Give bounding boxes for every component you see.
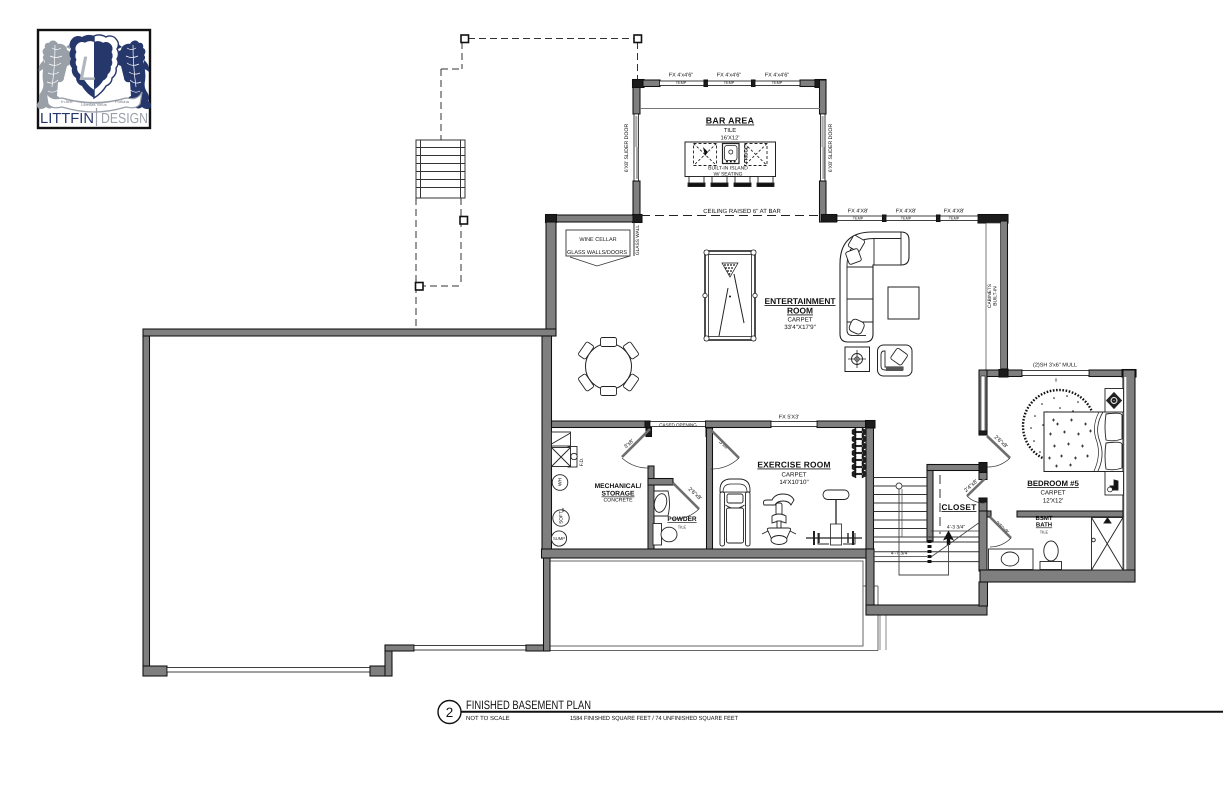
svg-text:In Arte: In Arte (61, 99, 73, 104)
svg-text:TEMP: TEMP (772, 81, 783, 85)
svg-text:TILE: TILE (724, 128, 736, 134)
svg-text:POWDER: POWDER (667, 516, 697, 523)
svg-text:CABINETS: CABINETS (987, 284, 993, 308)
svg-text:6'X8' SLIDER DOOR: 6'X8' SLIDER DOOR (828, 124, 834, 173)
svg-text:NOT TO SCALE: NOT TO SCALE (466, 715, 510, 722)
svg-text:SUMP: SUMP (553, 536, 565, 541)
svg-text:FX 4'x4'6": FX 4'x4'6" (717, 73, 742, 79)
svg-text:ENTERTAINMENT: ENTERTAINMENT (764, 296, 836, 306)
svg-text:TILE: TILE (678, 525, 687, 530)
svg-text:GLASS WALL: GLASS WALL (635, 225, 641, 256)
svg-text:EXERCISE ROOM: EXERCISE ROOM (757, 460, 830, 470)
svg-text:WH: WH (558, 477, 564, 486)
svg-text:FX 5'X3': FX 5'X3' (779, 415, 799, 421)
svg-text:TEMP: TEMP (901, 217, 912, 221)
svg-text:DESIGN: DESIGN (101, 111, 148, 127)
svg-text:STORAGE: STORAGE (602, 491, 635, 498)
svg-text:BATH: BATH (1036, 522, 1052, 529)
svg-text:TEMP: TEMP (853, 217, 864, 221)
svg-text:CARPET: CARPET (781, 472, 806, 479)
svg-text:ROOM: ROOM (787, 306, 813, 316)
svg-text:FX 4'X8': FX 4'X8' (944, 209, 964, 215)
svg-text:F.D.: F.D. (579, 458, 585, 467)
svg-text:FX 4'x4'6": FX 4'x4'6" (765, 73, 790, 79)
svg-text:Libertas Virtus: Libertas Virtus (81, 102, 107, 107)
svg-text:2: 2 (446, 705, 454, 720)
svg-text:1584 FINISHED SQUARE FEET / 7: 1584 FINISHED SQUARE FEET / 74 UNFINISHE… (570, 715, 738, 722)
svg-text:BUILT-IN: BUILT-IN (993, 286, 999, 306)
svg-text:12'X12': 12'X12' (1043, 498, 1063, 505)
svg-text:CONCRETE: CONCRETE (603, 498, 633, 504)
svg-text:MECHANICAL/: MECHANICAL/ (595, 483, 642, 490)
svg-text:16'X12': 16'X12' (721, 135, 740, 142)
svg-text:CARPET: CARPET (1040, 490, 1065, 497)
svg-text:TEMP: TEMP (676, 81, 687, 85)
svg-text:CLOSET: CLOSET (941, 503, 976, 512)
svg-text:FINISHED BASEMENT PLAN: FINISHED BASEMENT PLAN (466, 698, 591, 712)
svg-text:BEDROOM #5: BEDROOM #5 (1027, 479, 1079, 488)
svg-text:FX 4'X8': FX 4'X8' (896, 209, 916, 215)
svg-text:14'X10'10": 14'X10'10" (779, 479, 808, 486)
svg-text:FRIDGE: FRIDGE (744, 146, 749, 163)
svg-text:CEILING RAISED 6" AT BAR: CEILING RAISED 6" AT BAR (703, 208, 781, 215)
svg-text:BAR AREA: BAR AREA (706, 116, 755, 126)
svg-text:BSMT: BSMT (1036, 515, 1053, 522)
svg-text:CARPET: CARPET (787, 317, 812, 324)
svg-text:SOFT: SOFT (559, 511, 565, 524)
svg-text:4'-3 3/4": 4'-3 3/4" (947, 525, 966, 531)
svg-text:TILE: TILE (1040, 530, 1049, 535)
svg-text:33'4"X17'9": 33'4"X17'9" (784, 324, 816, 331)
svg-text:Fortuna: Fortuna (115, 99, 130, 104)
svg-text:(2)SH 3'x6" MULL: (2)SH 3'x6" MULL (1033, 363, 1077, 369)
svg-text:TEMP: TEMP (724, 81, 735, 85)
svg-text:L: L (79, 50, 98, 88)
svg-text:FX 4'X8': FX 4'X8' (848, 209, 868, 215)
svg-text:TEMP: TEMP (949, 217, 960, 221)
svg-text:FX 4'x4'6": FX 4'x4'6" (669, 73, 694, 79)
svg-text:6'X8' SLIDER DOOR: 6'X8' SLIDER DOOR (624, 124, 630, 173)
svg-text:LITTFIN: LITTFIN (40, 111, 94, 127)
svg-text:WINE CELLAR: WINE CELLAR (579, 237, 616, 243)
svg-text:CASED OPENING: CASED OPENING (659, 423, 697, 428)
svg-text:GLASS WALLS/DOORS: GLASS WALLS/DOORS (567, 250, 627, 256)
